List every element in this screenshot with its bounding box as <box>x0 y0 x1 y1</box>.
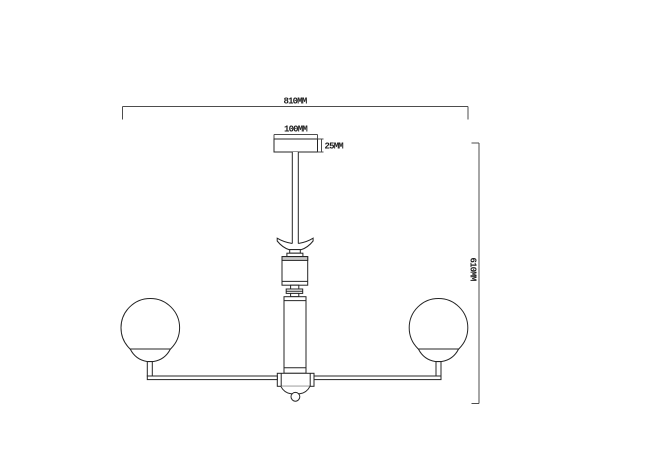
bell-collar <box>290 250 301 254</box>
drawing-canvas: 810MM 100MM <box>0 0 660 466</box>
stem-right <box>436 362 441 376</box>
dim-overall-width-label: 810MM <box>283 97 306 107</box>
dim-overall-width <box>123 107 469 120</box>
ceiling-canopy <box>274 139 318 152</box>
stem-left <box>147 362 152 376</box>
down-rod <box>292 152 298 244</box>
arm-left <box>147 376 277 380</box>
globe-right-cup <box>418 349 458 362</box>
dim-canopy-height-label: 25MM <box>325 142 344 152</box>
ball-finial <box>291 392 300 401</box>
dim-overall-height-label: 610MM <box>468 257 478 280</box>
arm-right <box>314 376 441 380</box>
joint-neck <box>291 285 299 289</box>
fixture <box>121 139 468 401</box>
dim-canopy-width <box>274 135 318 140</box>
arm-hub <box>277 373 314 386</box>
globe-right <box>409 299 468 358</box>
dim-canopy-height <box>318 139 324 152</box>
bell-collar-flange <box>287 253 303 256</box>
dim-canopy-width-label: 100MM <box>284 125 307 135</box>
globe-left-cup <box>130 349 170 362</box>
center-column <box>284 297 306 374</box>
upper-cylinder-top-band <box>282 257 308 261</box>
globe-left <box>121 299 180 358</box>
chandelier-dimension-drawing: 810MM 100MM <box>0 0 660 466</box>
